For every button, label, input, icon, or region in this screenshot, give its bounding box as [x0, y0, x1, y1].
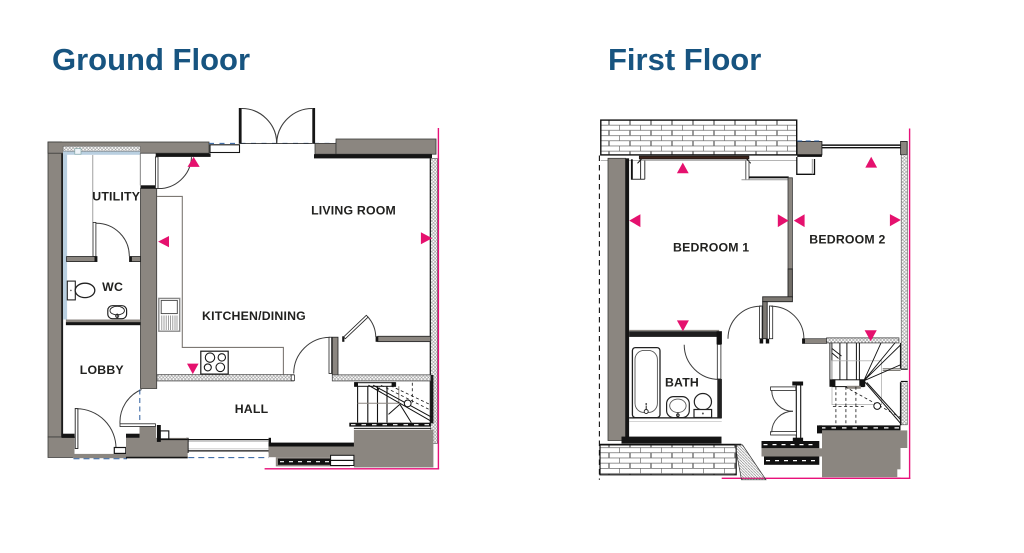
- svg-text:First Floor: First Floor: [608, 42, 761, 77]
- svg-text:HALL: HALL: [235, 402, 269, 416]
- svg-text:BEDROOM 2: BEDROOM 2: [809, 233, 885, 247]
- svg-text:Ground Floor: Ground Floor: [52, 42, 250, 77]
- svg-text:LIVING ROOM: LIVING ROOM: [311, 203, 396, 217]
- svg-text:LOBBY: LOBBY: [80, 363, 124, 377]
- svg-text:BEDROOM 1: BEDROOM 1: [673, 241, 749, 255]
- svg-text:WC: WC: [102, 280, 123, 294]
- svg-text:UTILITY: UTILITY: [92, 190, 140, 204]
- svg-text:BATH: BATH: [665, 375, 699, 389]
- svg-text:KITCHEN/DINING: KITCHEN/DINING: [202, 309, 306, 323]
